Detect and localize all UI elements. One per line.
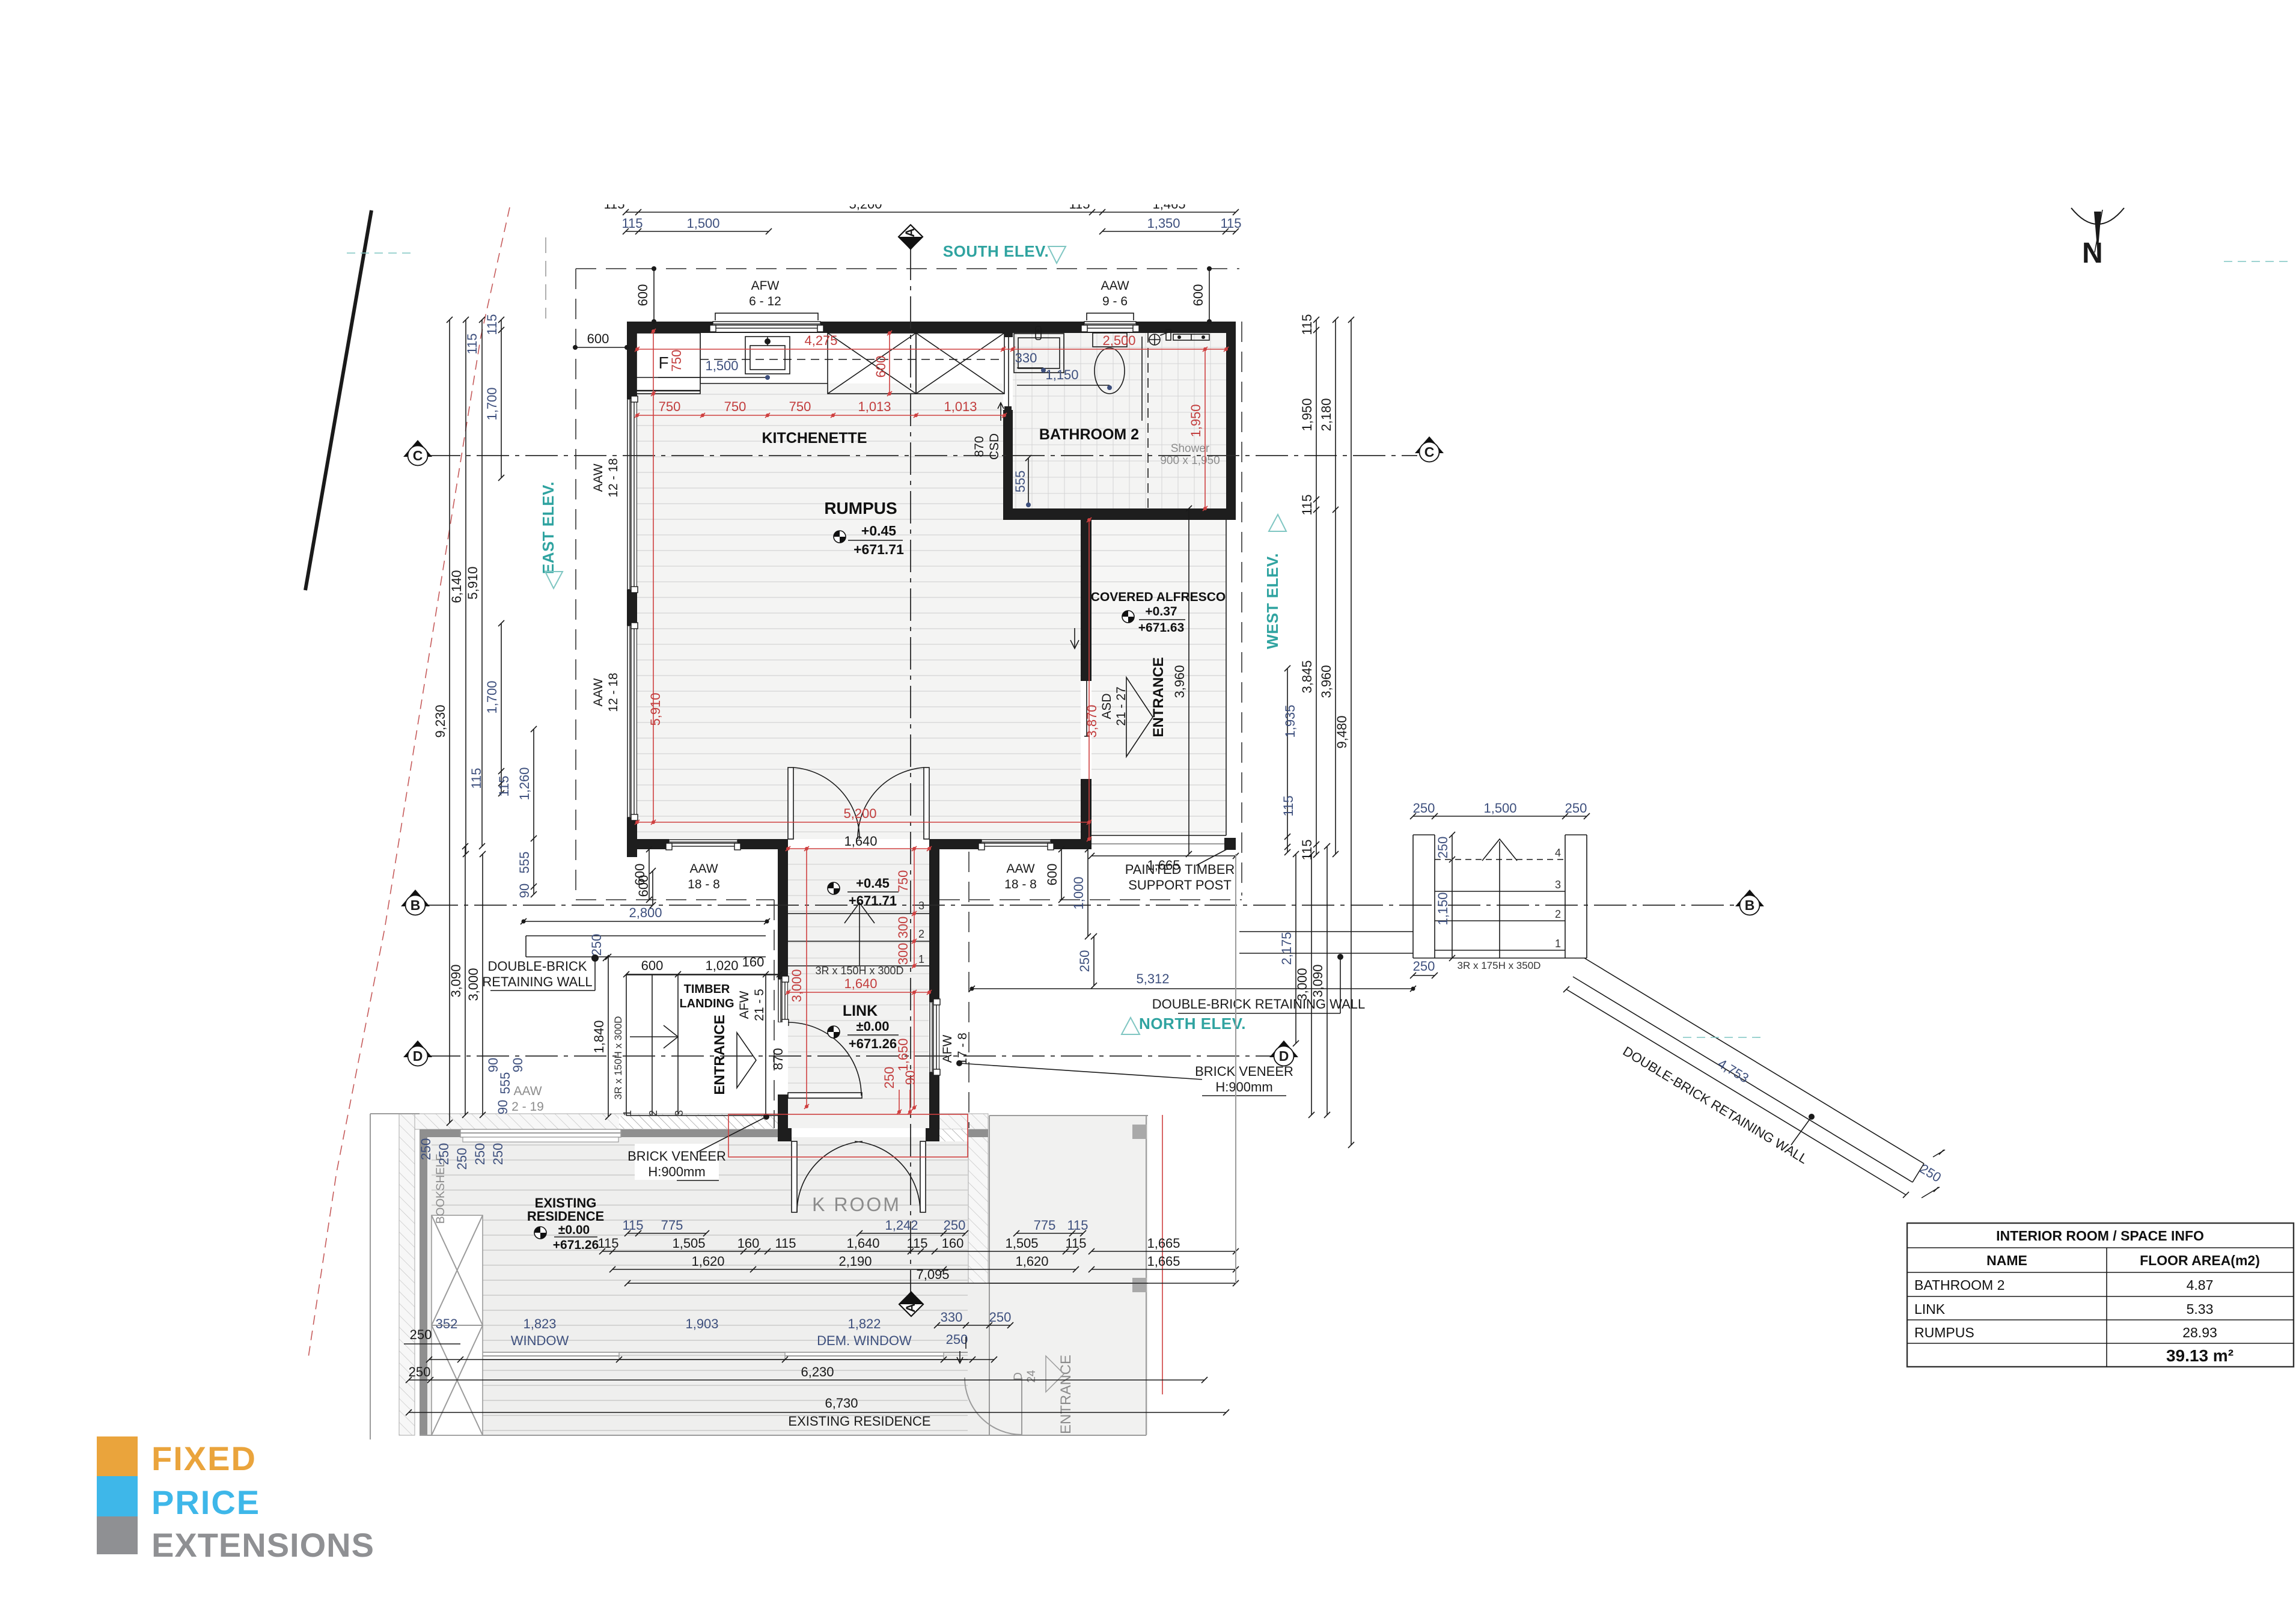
svg-text:3,000: 3,000 [1295, 968, 1310, 1001]
svg-text:90: 90 [517, 884, 532, 898]
svg-text:D: D [1279, 1048, 1289, 1064]
svg-text:RETAINING WALL: RETAINING WALL [482, 974, 592, 989]
svg-text:1,640: 1,640 [846, 1236, 879, 1251]
svg-text:3R x 175H x 350D: 3R x 175H x 350D [1458, 960, 1541, 971]
svg-text:1,640: 1,640 [844, 976, 877, 991]
svg-text:900 x 1,950: 900 x 1,950 [1160, 454, 1220, 467]
svg-text:1,260: 1,260 [517, 767, 532, 800]
svg-text:115: 115 [1299, 314, 1314, 335]
svg-text:330: 330 [1015, 350, 1037, 365]
svg-text:1,665: 1,665 [1147, 1236, 1180, 1251]
svg-text:250: 250 [989, 1310, 1012, 1325]
svg-text:24: 24 [1025, 1370, 1038, 1383]
svg-text:C: C [413, 448, 423, 463]
svg-text:H:900mm: H:900mm [648, 1164, 705, 1179]
svg-text:115: 115 [1281, 795, 1296, 816]
svg-text:6,140: 6,140 [449, 570, 464, 603]
svg-text:115: 115 [1299, 839, 1314, 860]
svg-text:KITCHENETTE: KITCHENETTE [762, 430, 867, 447]
svg-text:115: 115 [484, 314, 499, 335]
svg-text:12 - 18: 12 - 18 [606, 458, 620, 497]
svg-text:90: 90 [903, 1070, 918, 1085]
svg-text:115: 115 [469, 768, 484, 789]
svg-text:4,275: 4,275 [804, 333, 837, 348]
svg-text:RUMPUS: RUMPUS [1914, 1325, 1974, 1340]
svg-text:9,230: 9,230 [433, 704, 448, 737]
svg-text:2: 2 [918, 928, 924, 940]
svg-text:AAW: AAW [1006, 862, 1034, 876]
svg-text:775: 775 [661, 1218, 683, 1233]
svg-text:+0.37: +0.37 [1145, 605, 1177, 618]
svg-text:+671.26: +671.26 [553, 1238, 599, 1252]
svg-text:LANDING: LANDING [679, 997, 734, 1010]
svg-text:WEST ELEV.: WEST ELEV. [1263, 553, 1281, 649]
svg-text:A: A [904, 1303, 918, 1312]
svg-text:21 - 5: 21 - 5 [753, 989, 766, 1021]
svg-text:NORTH ELEV.: NORTH ELEV. [1139, 1015, 1246, 1033]
svg-text:1,505: 1,505 [672, 1236, 705, 1251]
svg-text:115: 115 [621, 216, 643, 231]
svg-text:AFW: AFW [737, 991, 751, 1019]
svg-text:1,700: 1,700 [484, 680, 499, 713]
svg-text:DEM. WINDOW: DEM. WINDOW [817, 1333, 912, 1348]
svg-text:B: B [1745, 897, 1755, 913]
svg-text:750: 750 [659, 399, 681, 414]
svg-text:PRICE: PRICE [151, 1483, 260, 1521]
svg-text:1,665: 1,665 [1147, 1254, 1180, 1269]
svg-text:BRICK VENEER: BRICK VENEER [627, 1149, 726, 1164]
svg-text:ENTRANCE: ENTRANCE [1150, 657, 1167, 737]
svg-text:250: 250 [1435, 837, 1450, 859]
svg-text:300: 300 [896, 917, 911, 939]
svg-text:1,500: 1,500 [686, 216, 719, 231]
svg-text:1,242: 1,242 [885, 1218, 918, 1233]
svg-text:115: 115 [1067, 1218, 1088, 1233]
svg-text:AAW: AAW [513, 1084, 542, 1098]
svg-text:LINK: LINK [843, 1003, 878, 1019]
svg-text:3,845: 3,845 [1299, 660, 1314, 693]
svg-text:250: 250 [418, 1138, 433, 1161]
svg-text:EAST ELEV.: EAST ELEV. [539, 481, 557, 574]
svg-text:1: 1 [621, 1110, 634, 1116]
svg-text:250: 250 [410, 1327, 432, 1342]
svg-text:1,500: 1,500 [1483, 801, 1516, 816]
svg-text:COVERED ALFRESCO: COVERED ALFRESCO [1091, 590, 1226, 604]
svg-text:1,840: 1,840 [591, 1020, 606, 1053]
svg-text:SOUTH ELEV.: SOUTH ELEV. [943, 242, 1049, 260]
svg-text:A: A [903, 228, 917, 237]
svg-text:250: 250 [490, 1143, 505, 1165]
svg-text:ENTRANCE: ENTRANCE [712, 1015, 728, 1094]
svg-text:1,640: 1,640 [844, 834, 877, 849]
svg-text:5.33: 5.33 [2187, 1301, 2214, 1317]
svg-text:F: F [658, 353, 668, 372]
svg-text:600: 600 [587, 331, 609, 346]
svg-text:±0.00: ±0.00 [558, 1223, 590, 1237]
svg-text:INTERIOR ROOM / SPACE INFO: INTERIOR ROOM / SPACE INFO [1996, 1228, 2204, 1244]
svg-text:LINK: LINK [1914, 1301, 1946, 1317]
svg-text:115: 115 [1220, 216, 1241, 231]
svg-text:600: 600 [636, 875, 651, 897]
svg-text:600: 600 [1045, 864, 1060, 886]
svg-text:4: 4 [1555, 847, 1561, 859]
svg-text:K ROOM: K ROOM [812, 1194, 901, 1215]
svg-text:39.13 m²: 39.13 m² [2166, 1346, 2233, 1365]
svg-text:EXISTING RESIDENCE: EXISTING RESIDENCE [788, 1414, 930, 1429]
svg-text:AAW: AAW [591, 463, 605, 492]
svg-text:FIXED: FIXED [151, 1439, 257, 1477]
svg-text:3R x 150H x 300D: 3R x 150H x 300D [815, 965, 903, 977]
svg-text:555: 555 [517, 852, 532, 874]
svg-text:600: 600 [635, 284, 650, 307]
svg-text:750: 750 [724, 399, 747, 414]
svg-text:9,480: 9,480 [1334, 715, 1349, 748]
svg-text:DOUBLE-BRICK RETAINING WALL: DOUBLE-BRICK RETAINING WALL [1152, 997, 1366, 1012]
svg-text:870: 870 [972, 436, 986, 457]
svg-text:AAW: AAW [1101, 279, 1129, 293]
svg-text:250: 250 [1413, 801, 1435, 816]
svg-text:1,013: 1,013 [858, 399, 891, 414]
svg-text:1,500: 1,500 [705, 358, 738, 373]
svg-text:750: 750 [789, 399, 811, 414]
svg-text:250: 250 [589, 934, 604, 956]
svg-text:1: 1 [918, 953, 924, 965]
svg-text:±0.00: ±0.00 [856, 1019, 890, 1034]
svg-text:+0.45: +0.45 [856, 876, 890, 891]
svg-text:160: 160 [742, 954, 765, 969]
svg-text:+671.63: +671.63 [1138, 621, 1185, 635]
svg-text:+671.26: +671.26 [849, 1036, 897, 1051]
svg-text:CSD: CSD [988, 433, 1001, 460]
svg-text:7,095: 7,095 [916, 1267, 949, 1282]
svg-text:115: 115 [622, 1218, 643, 1233]
svg-text:D: D [413, 1048, 423, 1064]
svg-text:+0.45: +0.45 [861, 523, 896, 539]
svg-text:5,910: 5,910 [465, 566, 480, 599]
svg-text:RESIDENCE: RESIDENCE [527, 1209, 604, 1224]
svg-text:555: 555 [1013, 471, 1028, 493]
svg-text:BRICK VENEER: BRICK VENEER [1195, 1064, 1293, 1079]
svg-text:2,500: 2,500 [1102, 333, 1135, 348]
svg-text:555: 555 [498, 1072, 513, 1094]
svg-text:90: 90 [495, 1100, 510, 1114]
svg-text:DOUBLE-BRICK: DOUBLE-BRICK [487, 959, 587, 974]
svg-text:5,200: 5,200 [843, 806, 876, 821]
svg-text:1,700: 1,700 [484, 387, 499, 420]
svg-text:WINDOW: WINDOW [511, 1333, 569, 1348]
svg-text:1,935: 1,935 [1283, 704, 1298, 737]
svg-text:250: 250 [409, 1364, 431, 1379]
svg-text:1,665: 1,665 [1147, 858, 1180, 873]
svg-text:600: 600 [873, 356, 888, 378]
svg-text:ASD: ASD [1100, 693, 1114, 719]
svg-text:115: 115 [597, 1236, 618, 1251]
svg-text:1,000: 1,000 [1071, 876, 1086, 909]
svg-text:AAW: AAW [591, 678, 605, 706]
svg-text:D: D [1012, 1372, 1025, 1381]
svg-text:2: 2 [1555, 908, 1561, 920]
svg-text:N: N [2082, 237, 2103, 269]
svg-text:1,020: 1,020 [705, 958, 738, 973]
svg-text:6,230: 6,230 [801, 1364, 834, 1379]
svg-text:2,190: 2,190 [838, 1254, 872, 1269]
svg-text:250: 250 [946, 1332, 968, 1347]
svg-text:+671.71: +671.71 [853, 542, 904, 557]
svg-text:250: 250 [1565, 801, 1587, 816]
svg-text:250: 250 [1077, 950, 1092, 972]
svg-text:1,620: 1,620 [691, 1254, 724, 1269]
svg-text:2,800: 2,800 [629, 905, 662, 920]
svg-text:115: 115 [1065, 1236, 1086, 1251]
svg-text:AFW: AFW [751, 279, 780, 293]
svg-text:RUMPUS: RUMPUS [824, 499, 897, 517]
svg-text:9 - 6: 9 - 6 [1102, 295, 1128, 308]
svg-text:300: 300 [896, 943, 911, 965]
svg-text:1,350: 1,350 [1147, 216, 1180, 231]
svg-text:ENTRANCE: ENTRANCE [1058, 1355, 1074, 1434]
svg-text:1,013: 1,013 [944, 399, 977, 414]
svg-text:1,950: 1,950 [1188, 404, 1203, 437]
svg-text:90: 90 [510, 1058, 525, 1072]
svg-text:775: 775 [1034, 1218, 1056, 1233]
svg-text:FLOOR AREA(m2): FLOOR AREA(m2) [2140, 1253, 2260, 1268]
svg-text:BATHROOM 2: BATHROOM 2 [1039, 426, 1139, 443]
svg-text:352: 352 [436, 1316, 458, 1331]
svg-text:1,823: 1,823 [523, 1316, 556, 1331]
svg-text:H:900mm: H:900mm [1215, 1079, 1272, 1094]
svg-text:B: B [411, 897, 421, 913]
svg-text:1,150: 1,150 [1045, 367, 1078, 382]
svg-text:3,000: 3,000 [789, 969, 804, 1002]
svg-text:17 - 8: 17 - 8 [956, 1033, 969, 1065]
svg-text:600: 600 [641, 958, 664, 973]
svg-text:330: 330 [941, 1310, 963, 1325]
svg-text:750: 750 [669, 350, 684, 372]
svg-text:160: 160 [737, 1236, 760, 1251]
svg-text:Shower: Shower [1171, 442, 1210, 455]
svg-text:1,950: 1,950 [1299, 398, 1314, 431]
svg-text:1,150: 1,150 [1435, 892, 1450, 925]
svg-text:3,870: 3,870 [1084, 704, 1099, 737]
svg-text:AFW: AFW [941, 1034, 954, 1063]
svg-text:250: 250 [472, 1143, 487, 1165]
svg-text:1,822: 1,822 [847, 1316, 881, 1331]
svg-text:250: 250 [1413, 959, 1435, 974]
svg-text:3,090: 3,090 [1310, 964, 1325, 997]
svg-text:+671.71: +671.71 [849, 893, 897, 908]
svg-text:3: 3 [918, 900, 924, 912]
svg-text:NAME: NAME [1986, 1253, 2027, 1268]
svg-text:3: 3 [673, 1110, 685, 1116]
svg-text:5,910: 5,910 [648, 692, 663, 725]
svg-text:1,505: 1,505 [1005, 1236, 1038, 1251]
svg-text:250: 250 [454, 1148, 469, 1170]
svg-text:21 - 27: 21 - 27 [1114, 686, 1128, 725]
svg-text:160: 160 [942, 1236, 964, 1251]
svg-text:870: 870 [771, 1048, 786, 1070]
svg-text:115: 115 [465, 333, 480, 354]
svg-text:1,620: 1,620 [1015, 1254, 1048, 1269]
svg-text:18 - 8: 18 - 8 [1004, 878, 1037, 891]
svg-text:TIMBER: TIMBER [684, 983, 730, 996]
svg-text:6,730: 6,730 [825, 1396, 858, 1411]
svg-text:1,903: 1,903 [685, 1316, 718, 1331]
svg-text:250: 250 [882, 1067, 897, 1089]
svg-text:2,175: 2,175 [1279, 932, 1294, 965]
svg-text:115: 115 [1299, 494, 1314, 515]
svg-text:3R x 150H x 300D: 3R x 150H x 300D [612, 1016, 624, 1100]
svg-text:3: 3 [1555, 879, 1561, 891]
svg-text:EXTENSIONS: EXTENSIONS [151, 1526, 374, 1564]
svg-text:AAW: AAW [689, 862, 718, 876]
svg-text:6 - 12: 6 - 12 [749, 295, 781, 308]
svg-text:3,090: 3,090 [448, 964, 463, 997]
svg-text:3,960: 3,960 [1172, 665, 1187, 698]
svg-text:SUPPORT POST: SUPPORT POST [1128, 878, 1232, 893]
svg-text:115: 115 [906, 1236, 927, 1251]
svg-text:3,960: 3,960 [1319, 665, 1334, 698]
svg-text:2 - 19: 2 - 19 [511, 1100, 544, 1114]
svg-text:750: 750 [896, 870, 911, 893]
svg-text:3,000: 3,000 [466, 968, 481, 1001]
svg-text:115: 115 [496, 775, 511, 796]
svg-text:2: 2 [647, 1110, 659, 1116]
svg-text:5,312: 5,312 [1136, 971, 1169, 986]
svg-text:BATHROOM 2: BATHROOM 2 [1914, 1277, 2004, 1293]
svg-text:C: C [1424, 444, 1435, 460]
svg-text:1: 1 [1555, 938, 1561, 950]
svg-text:1,650: 1,650 [896, 1038, 911, 1071]
svg-text:12 - 18: 12 - 18 [606, 673, 620, 712]
svg-text:4.87: 4.87 [2187, 1277, 2214, 1293]
svg-text:115: 115 [775, 1236, 796, 1251]
svg-text:90: 90 [486, 1058, 501, 1072]
svg-text:28.93: 28.93 [2182, 1325, 2217, 1340]
svg-text:600: 600 [1191, 284, 1206, 307]
svg-text:250: 250 [944, 1218, 966, 1233]
svg-text:18 - 8: 18 - 8 [688, 878, 720, 891]
svg-text:250: 250 [436, 1143, 451, 1165]
svg-text:2,180: 2,180 [1319, 398, 1334, 431]
